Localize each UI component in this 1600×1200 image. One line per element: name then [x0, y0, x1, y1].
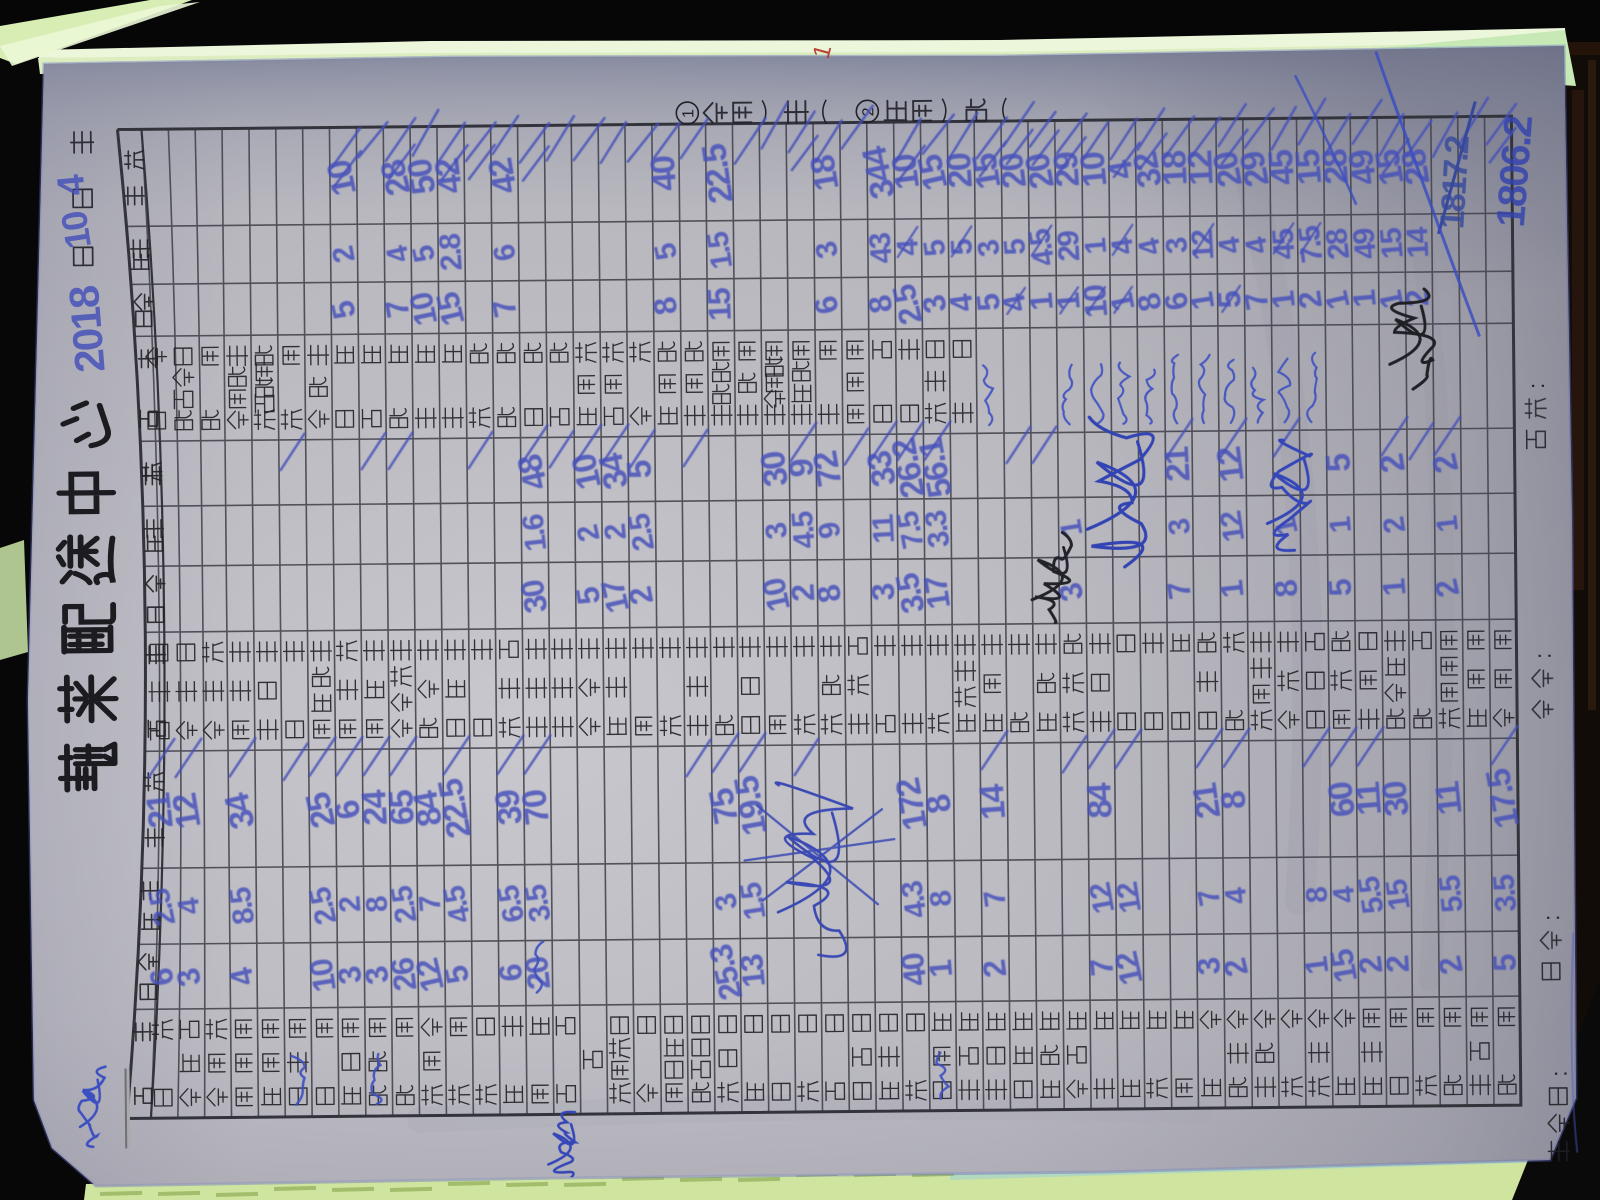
svg-text:84: 84	[1080, 782, 1120, 820]
svg-text:3.5: 3.5	[1487, 873, 1523, 913]
svg-text:1: 1	[680, 109, 697, 118]
svg-text::: :	[1547, 1070, 1572, 1076]
svg-text:2018: 2018	[60, 284, 114, 375]
svg-text::: :	[1539, 915, 1564, 921]
svg-text:14: 14	[973, 783, 1013, 821]
svg-text:5.5: 5.5	[1433, 874, 1470, 914]
svg-text:42: 42	[428, 156, 470, 195]
svg-text:15: 15	[700, 287, 737, 321]
svg-text:12: 12	[1210, 445, 1252, 484]
svg-text:2.5: 2.5	[623, 511, 662, 553]
svg-text:3.5: 3.5	[519, 882, 558, 924]
svg-text:1.5: 1.5	[701, 230, 739, 271]
svg-text:11: 11	[1428, 780, 1469, 817]
svg-text:5: 5	[1486, 954, 1523, 973]
svg-text::: :	[1531, 653, 1556, 659]
svg-text:2.8: 2.8	[433, 233, 468, 272]
svg-text:40: 40	[644, 155, 684, 193]
svg-text:3.3: 3.3	[919, 509, 956, 550]
svg-text:1.6: 1.6	[516, 513, 553, 553]
svg-text:13: 13	[733, 953, 772, 989]
svg-text:1817.2: 1817.2	[1433, 135, 1477, 230]
svg-text:10: 10	[53, 209, 99, 252]
svg-text:1.5: 1.5	[734, 880, 772, 922]
svg-text::: :	[1524, 383, 1549, 389]
svg-text:8.5: 8.5	[224, 885, 262, 926]
svg-text:1806.2: 1806.2	[1489, 115, 1541, 229]
svg-text:21: 21	[1158, 446, 1198, 483]
svg-text:12: 12	[1214, 509, 1251, 544]
svg-text:30: 30	[1375, 779, 1417, 818]
svg-text:14: 14	[1401, 226, 1436, 259]
svg-text:70: 70	[515, 788, 557, 828]
svg-text:17: 17	[917, 574, 957, 612]
